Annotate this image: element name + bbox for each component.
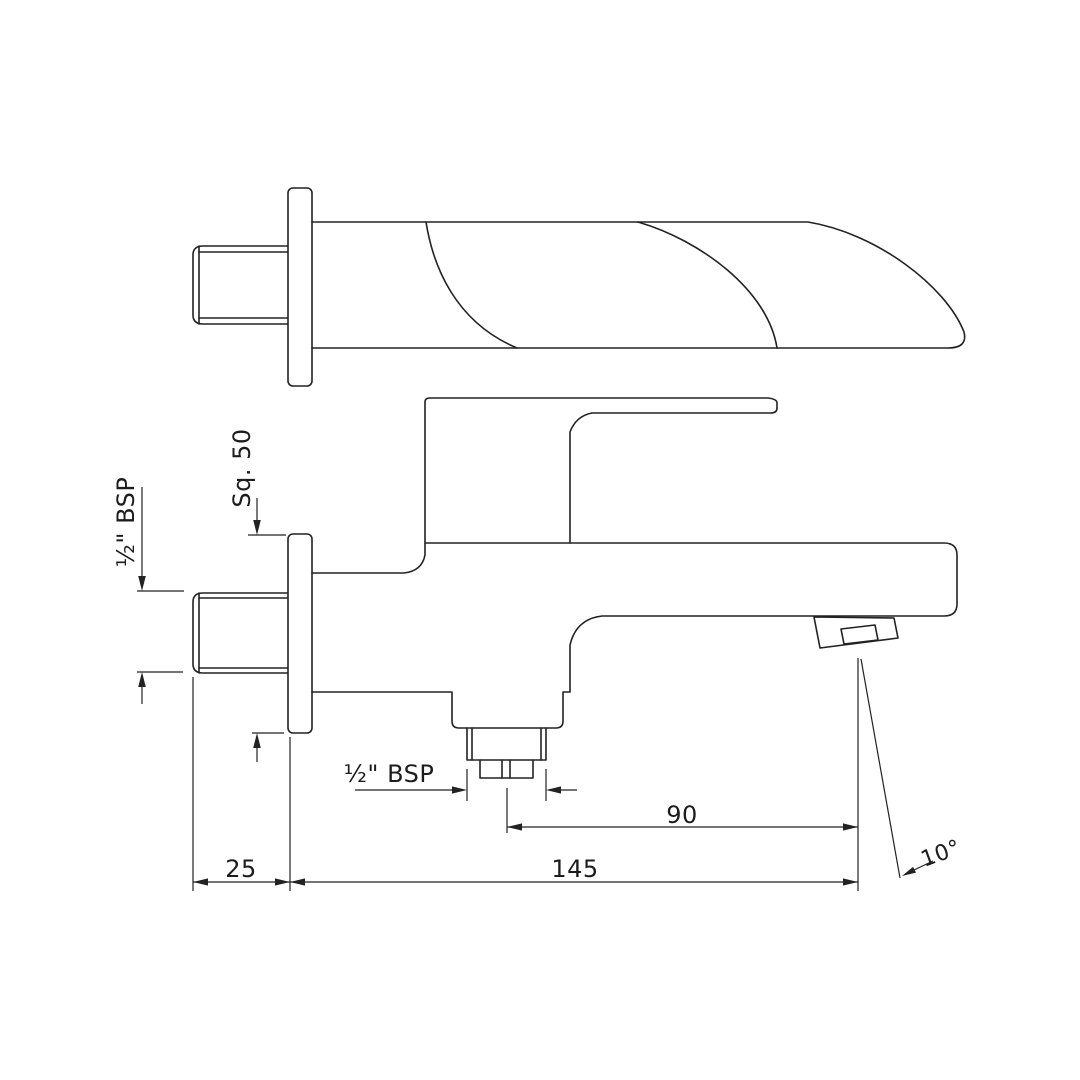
- angle-line-10deg: [861, 659, 900, 878]
- top-inlet-thread-relief: [199, 252, 288, 318]
- arrow-flange-up: [253, 733, 261, 748]
- arrow-90-left: [507, 823, 522, 830]
- side-wall-flange: [288, 534, 312, 733]
- arrow-145-left: [290, 878, 305, 885]
- technical-drawing-canvas: Sq. 50 ½" BSP ½" BSP 90 145 25 10°: [0, 0, 1080, 1080]
- dimension-lines: [137, 487, 933, 891]
- dim-label-inlet-thread: ½" BSP: [112, 477, 140, 568]
- top-view: [193, 188, 965, 386]
- side-outlet-collar: [480, 760, 533, 778]
- top-spout-body: [312, 222, 965, 348]
- dim-label-outlet-thread: ½" BSP: [344, 760, 435, 788]
- dim-label-flange-square: Sq. 50: [228, 428, 256, 507]
- top-wall-flange: [288, 188, 312, 386]
- side-body-outline: [312, 543, 957, 728]
- arrow-bsp-up: [138, 672, 146, 687]
- side-handle: [425, 398, 777, 543]
- dim-label-90: 90: [666, 801, 698, 829]
- dim-label-145: 145: [551, 855, 598, 883]
- arrow-10deg: [902, 867, 916, 876]
- arrow-90-right: [843, 823, 858, 830]
- top-body-curve-2: [638, 222, 777, 348]
- arrow-outlet-left: [452, 786, 467, 793]
- arrow-145-right: [843, 878, 858, 885]
- top-body-curve-1: [426, 222, 517, 348]
- arrow-sq50-down: [253, 520, 261, 535]
- side-aerator-face: [841, 625, 878, 644]
- side-outlet-thread: [467, 728, 546, 760]
- dim-label-25: 25: [225, 855, 257, 883]
- arrow-outlet-right: [546, 786, 561, 793]
- arrow-25-right: [275, 878, 290, 885]
- drawing-linework: [0, 0, 1080, 1080]
- side-inlet-thread: [193, 593, 290, 673]
- side-inlet-thread-relief: [199, 598, 290, 668]
- top-inlet-thread: [193, 246, 288, 324]
- arrow-bsp-down: [138, 576, 146, 591]
- arrow-25-left: [193, 878, 208, 885]
- side-outlet-collar-notch: [502, 760, 510, 778]
- side-view: [193, 398, 957, 778]
- side-outlet-thread-relief: [472, 728, 541, 760]
